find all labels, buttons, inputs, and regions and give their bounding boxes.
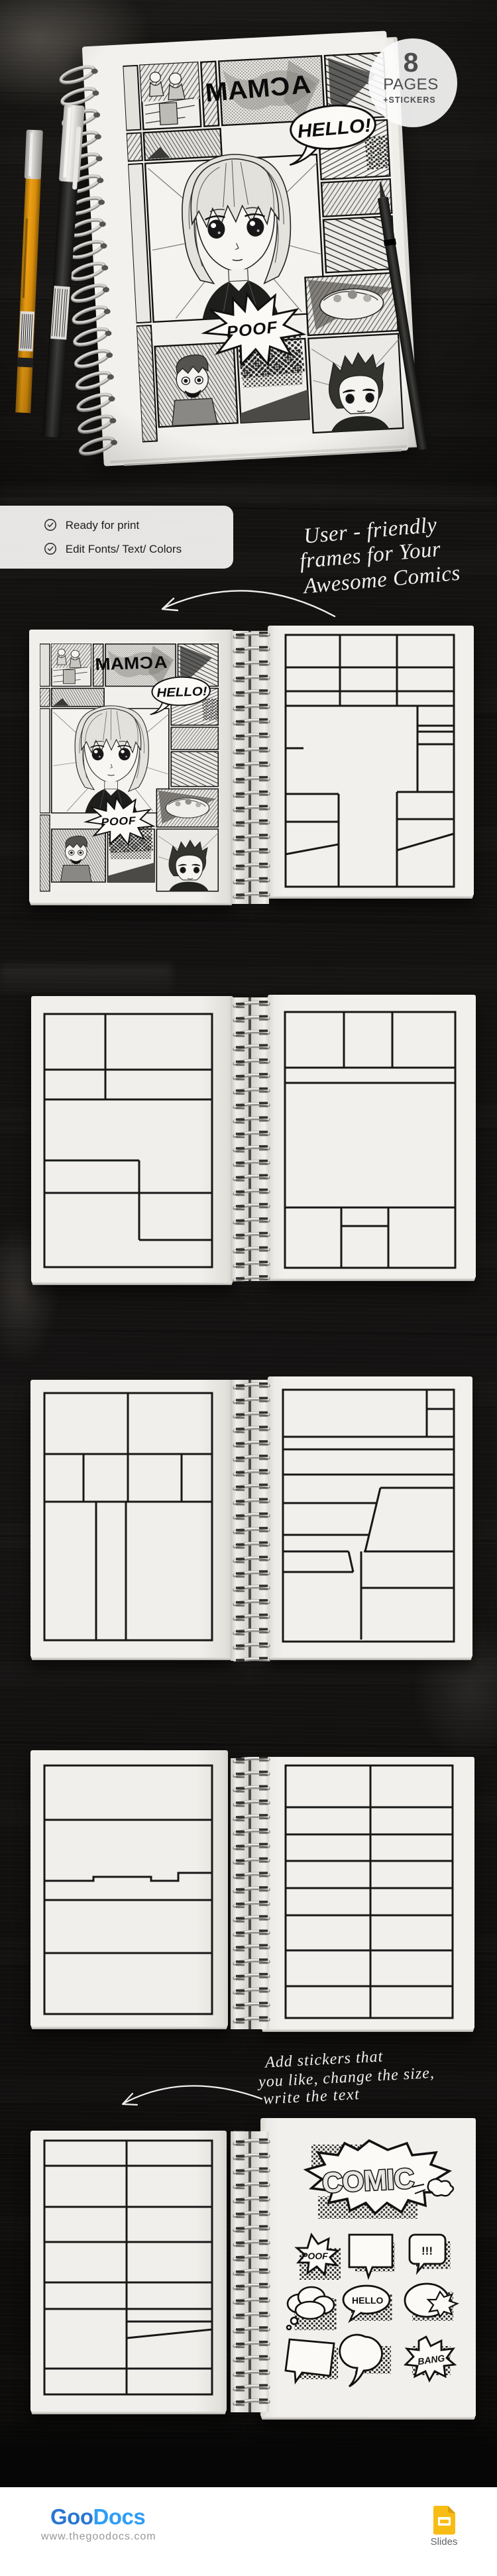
- svg-text:+STICKERS: +STICKERS: [383, 95, 436, 105]
- svg-text:POOF: POOF: [302, 2251, 328, 2261]
- svg-text:COMIC: COMIC: [321, 2163, 415, 2200]
- svg-text:PAGES: PAGES: [383, 76, 438, 93]
- svg-text:!!!: !!!: [421, 2245, 433, 2257]
- svg-text:HELLO: HELLO: [352, 2295, 384, 2306]
- svg-text:8: 8: [404, 47, 419, 78]
